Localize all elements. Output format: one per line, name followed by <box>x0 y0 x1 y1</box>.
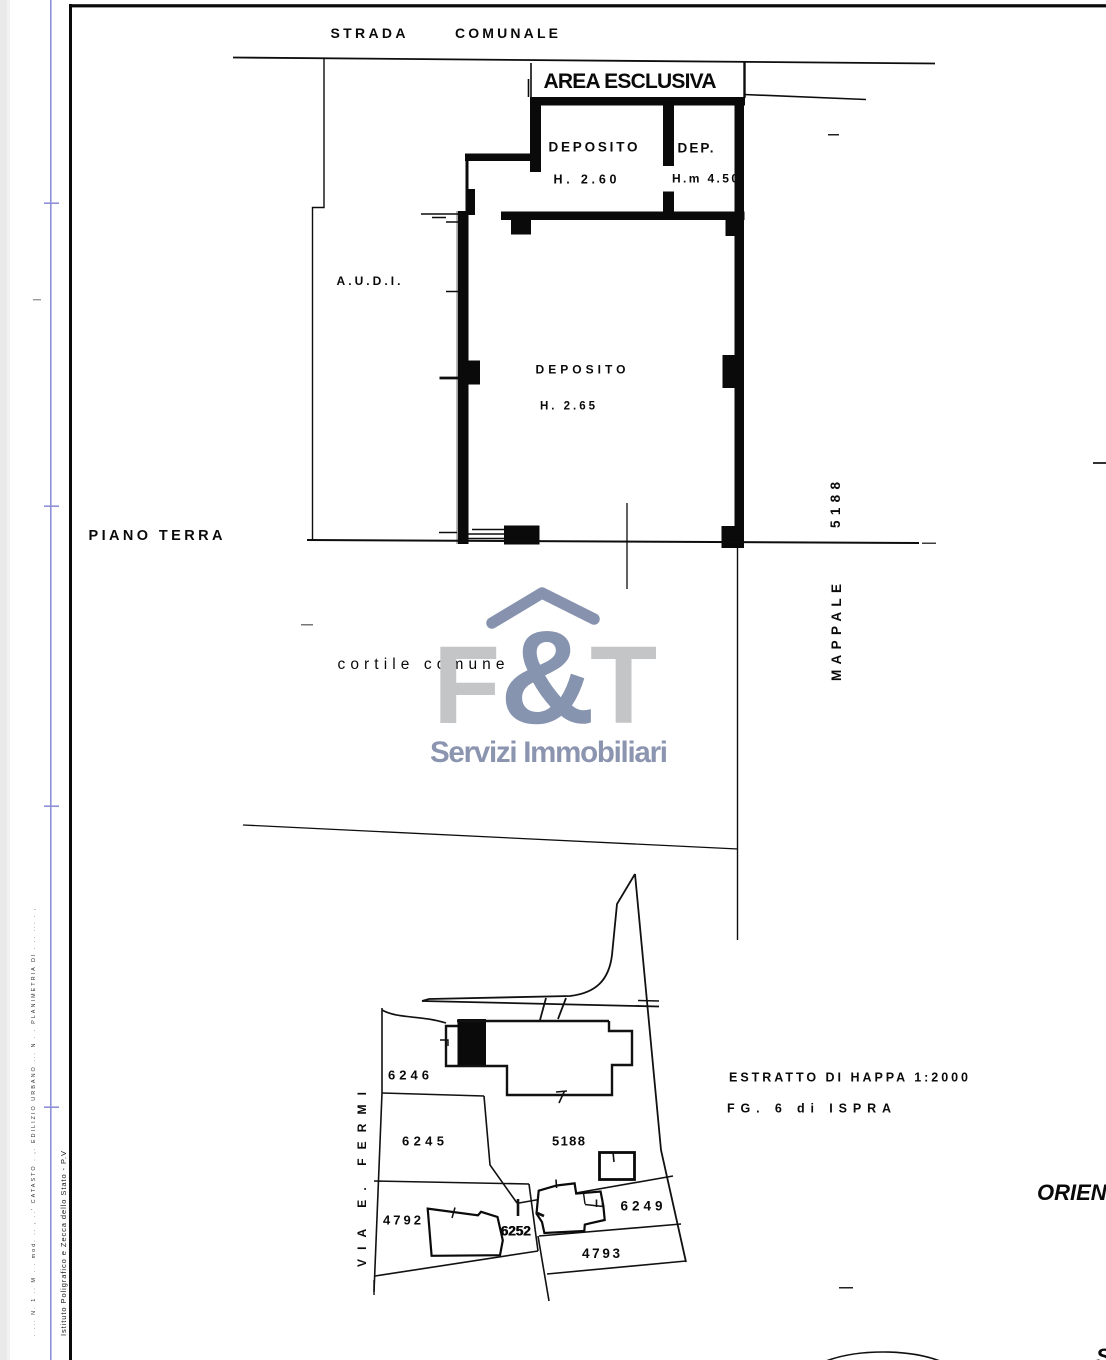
svg-text:DEPOSITO: DEPOSITO <box>536 363 626 377</box>
svg-text:5188: 5188 <box>552 1134 585 1149</box>
svg-text:&: & <box>500 604 595 752</box>
svg-text:ORIENT: ORIENT <box>1037 1180 1106 1205</box>
svg-text:. ... N. 1 .. M . . mod. .. ,: . ... N. 1 .. M . . mod. .. , ..' CATAST… <box>31 907 37 1336</box>
svg-text:Servizi Immobiliari: Servizi Immobiliari <box>430 736 668 769</box>
svg-text:S: S <box>1096 1344 1106 1360</box>
svg-text:COMUNALE: COMUNALE <box>455 25 558 41</box>
svg-text:Istituto Poligrafico e Zecca d: Istituto Poligrafico e Zecca dello Stato… <box>59 1151 68 1336</box>
svg-text:F: F <box>433 624 500 747</box>
svg-text:AREA ESCLUSIVA: AREA ESCLUSIVA <box>544 70 717 93</box>
svg-text:6252: 6252 <box>501 1224 531 1239</box>
svg-text:T: T <box>590 624 657 747</box>
svg-text:DEPOSITO: DEPOSITO <box>549 140 638 155</box>
